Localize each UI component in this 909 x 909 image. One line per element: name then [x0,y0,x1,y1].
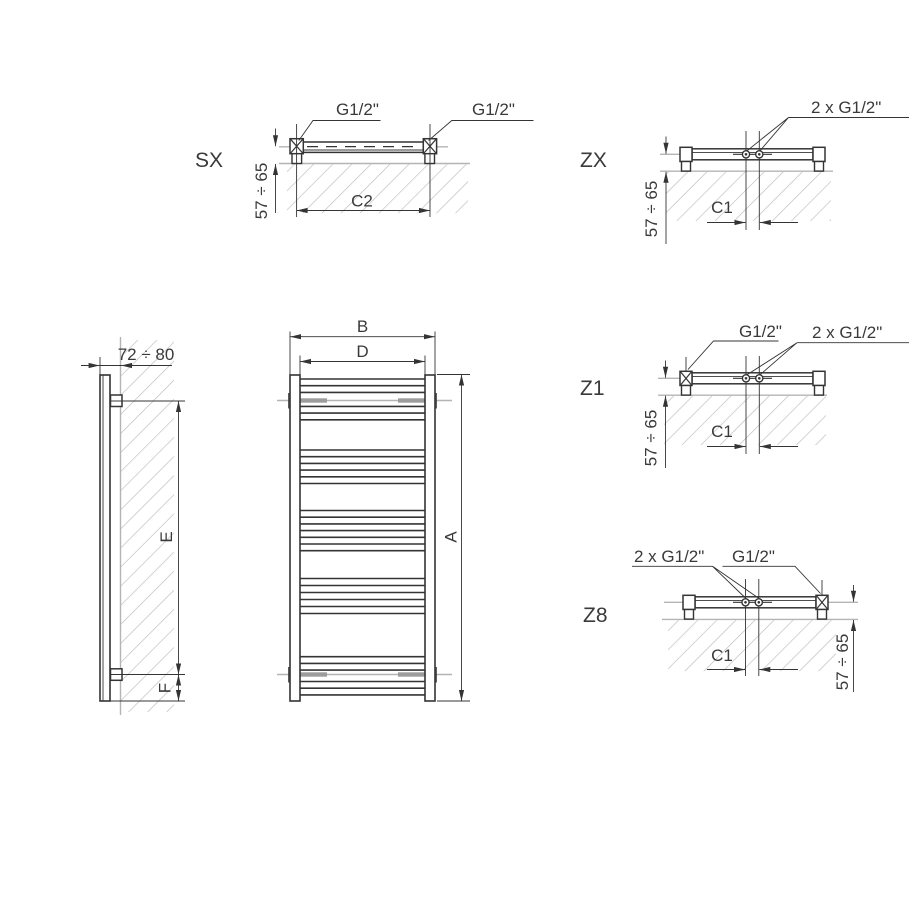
z1-type-label: Z1 [580,377,605,400]
z1-side-port-leader [688,341,779,370]
zx-diagram: 2 x G1/2" 57 ÷ 65 C1 ZX [580,98,909,244]
z1-side-port-label: G1/2" [739,322,782,341]
sx-port-left-label: G1/2" [336,100,379,119]
z8-wall-hatching [668,620,836,671]
z1-wall-distance-label: 57 ÷ 65 [642,410,661,467]
sx-type-label: SX [195,149,223,172]
sx-port-right-label: G1/2" [472,100,515,119]
side-wall-hatching [121,340,175,712]
z1-end-cap-right [813,371,825,385]
z8-wall-distance-label: 57 ÷ 65 [833,634,852,691]
sx-wall-hatching [287,164,468,213]
drawing-canvas: C2 57 ÷ 65 G1/2" G1/2" SX 2 x G1/2" [0,0,909,909]
front-view: B D A [277,317,470,701]
side-view: 72 ÷ 80 E F [81,337,185,715]
z1-center-ports-label: 2 x G1/2" [812,323,882,342]
z1-foot-right [815,386,824,396]
z1-center-leader-diagonals [747,343,797,375]
z1-foot-left [682,386,691,396]
front-collector-left [290,375,300,701]
z8-center-ports-label: 2 x G1/2" [634,547,704,566]
z8-c1-label: C1 [711,646,733,665]
z8-type-label: Z8 [583,604,608,627]
radiator-technical-drawing: C2 57 ÷ 65 G1/2" G1/2" SX 2 x G1/2" [0,0,909,909]
z8-foot-right [818,610,827,620]
z8-side-port-label: G1/2" [732,547,775,566]
front-collector-right [425,375,435,701]
front-b-label: B [357,317,368,336]
zx-foot-left [682,162,691,172]
zx-end-cap-left [680,147,692,161]
zx-foot-right [815,162,824,172]
z8-end-cap-left [683,595,695,609]
zx-c1-label: C1 [711,198,733,217]
sx-diagram: C2 57 ÷ 65 G1/2" G1/2" SX [195,100,534,219]
zx-end-cap-right [813,147,825,161]
z8-side-port-leader [723,566,821,593]
side-depth-label: 72 ÷ 80 [118,345,175,364]
z8-valve-right [816,595,828,609]
sx-leader-left [299,121,381,141]
zx-center-ports-label: 2 x G1/2" [811,98,881,117]
zx-wall-hatching [666,172,831,221]
z8-diagram: 2 x G1/2" G1/2" 57 ÷ 65 C1 Z8 [583,547,858,692]
zx-leader-diagonals [747,118,789,151]
sx-wall-distance-label: 57 ÷ 65 [252,163,271,220]
zx-wall-distance-label: 57 ÷ 65 [642,181,661,238]
z8-foot-left [685,610,694,620]
z1-wall-hatching [664,396,826,445]
sx-leader-right [429,121,534,141]
z1-valve-left [680,371,692,385]
side-f-label: F [156,683,175,693]
side-e-label: E [157,531,176,542]
front-a-label: A [442,531,461,543]
front-rungs [300,379,425,695]
z1-diagram: G1/2" 2 x G1/2" 57 ÷ 65 C1 Z1 [580,322,909,468]
sx-c2-label: C2 [351,192,373,211]
front-d-label: D [356,342,368,361]
z1-c1-label: C1 [711,422,733,441]
z8-center-leader-diagonals [713,566,760,599]
side-radiator-profile [100,375,110,701]
zx-type-label: ZX [580,149,607,172]
